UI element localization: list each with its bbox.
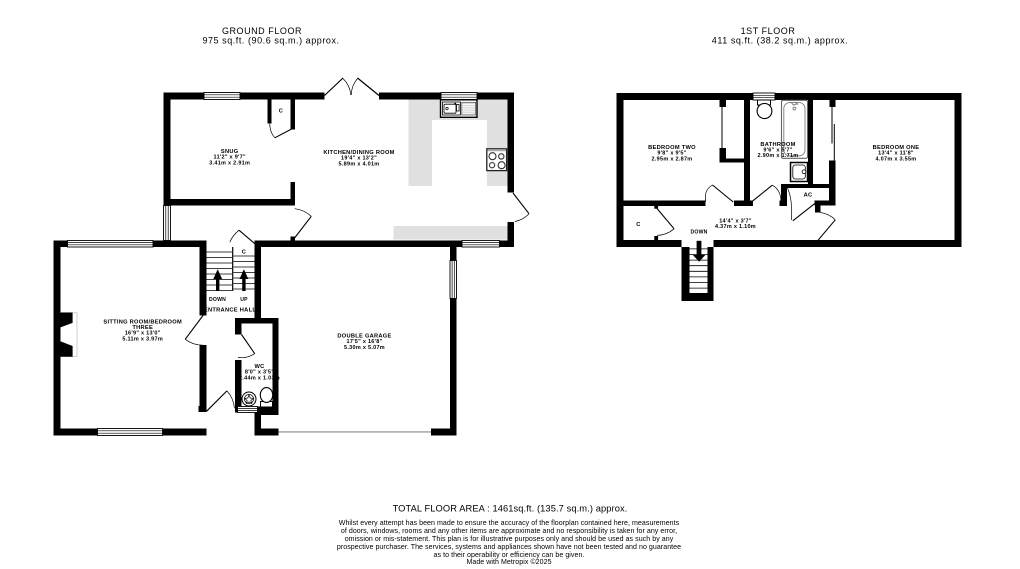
svg-text:C: C <box>636 222 640 228</box>
svg-text:5.30m x 5.07m: 5.30m x 5.07m <box>344 345 385 351</box>
svg-text:of doors, windows, rooms and a: of doors, windows, rooms and any other i… <box>341 528 677 535</box>
svg-text:Whilst every attempt has been: Whilst every attempt has been made to en… <box>339 520 680 527</box>
svg-text:2.90m x 1.71m: 2.90m x 1.71m <box>758 153 799 159</box>
svg-text:omission or mis-statement. Thi: omission or mis-statement. This plan is … <box>345 536 674 543</box>
svg-text:prospective purchaser. The ser: prospective purchaser. The services, sys… <box>337 544 681 551</box>
svg-text:Made with Metropix ©2025: Made with Metropix ©2025 <box>466 558 551 566</box>
svg-text:1ST FLOOR: 1ST FLOOR <box>741 26 796 36</box>
svg-text:C: C <box>279 109 283 115</box>
svg-text:DOWN: DOWN <box>691 230 708 236</box>
svg-text:C: C <box>242 250 246 256</box>
svg-text:4.37m x 1.10m: 4.37m x 1.10m <box>715 224 756 230</box>
svg-text:411 sq.ft. (38.2 sq.m.) approx: 411 sq.ft. (38.2 sq.m.) approx. <box>712 36 848 46</box>
svg-text:AC: AC <box>804 193 813 199</box>
svg-text:4.07m x 3.55m: 4.07m x 3.55m <box>876 156 917 162</box>
svg-text:TOTAL FLOOR AREA : 1461sq.ft.: TOTAL FLOOR AREA : 1461sq.ft. (135.7 sq.… <box>393 504 628 514</box>
svg-text:975 sq.ft. (90.6 sq.m.) approx: 975 sq.ft. (90.6 sq.m.) approx. <box>202 36 339 46</box>
svg-text:as to their operability or eff: as to their operability or efficiency ca… <box>434 552 585 559</box>
svg-text:UP: UP <box>240 297 248 303</box>
svg-text:GROUND FLOOR: GROUND FLOOR <box>222 26 302 36</box>
svg-text:3.41m x 2.91m: 3.41m x 2.91m <box>209 160 250 166</box>
svg-text:2.95m x 2.87m: 2.95m x 2.87m <box>652 156 693 162</box>
svg-text:5.11m x 3.97m: 5.11m x 3.97m <box>122 336 163 342</box>
svg-text:5.89m x 4.01m: 5.89m x 4.01m <box>339 161 380 167</box>
svg-text:DOWN: DOWN <box>209 297 226 303</box>
svg-text:ENTRANCE HALL: ENTRANCE HALL <box>204 308 256 314</box>
svg-text:2.44m x 1.03m: 2.44m x 1.03m <box>239 375 280 381</box>
